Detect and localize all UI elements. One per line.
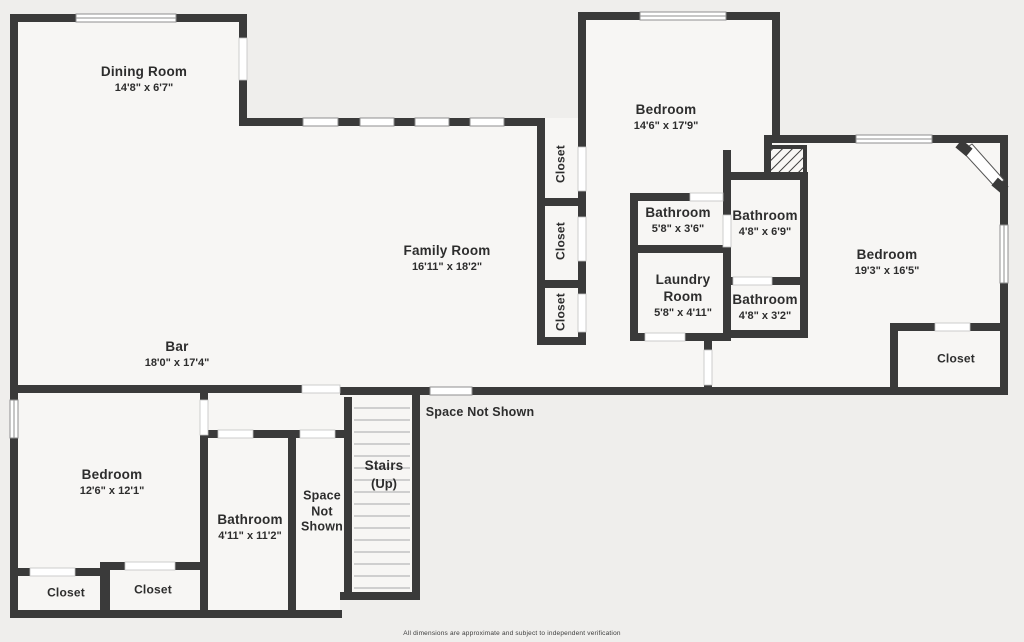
room-name: Bar [145, 339, 210, 356]
room-label-bathroom-3: Bathroom 4'8" x 3'2" [732, 292, 797, 324]
room-dims: 14'8" x 6'7" [101, 82, 187, 96]
room-label-bar: Bar 18'0" x 17'4" [145, 339, 210, 371]
room-label-bathroom-2: Bathroom 4'8" x 6'9" [732, 208, 797, 240]
room-label-bathroom-bottom: Bathroom 4'11" x 11'2" [217, 512, 282, 544]
label-space-not-shown-room: Space Not Shown [292, 489, 352, 536]
room-label-dining-room: Dining Room 14'8" x 6'7" [101, 64, 187, 96]
room-label-bedroom-top: Bedroom 14'6" x 17'9" [634, 102, 699, 134]
room-name: Space Not Shown [292, 489, 352, 536]
room-dims: 5'8" x 4'11" [637, 307, 729, 321]
room-label-closet-hall-1: Closet [554, 145, 569, 183]
room-name: Laundry Room [637, 272, 729, 306]
room-label-family-room: Family Room 16'11" x 18'2" [404, 243, 491, 275]
room-dims: (Up) [365, 476, 404, 492]
room-dims: 14'6" x 17'9" [634, 120, 699, 134]
room-name: Bedroom [634, 102, 699, 119]
room-label-bathroom-1: Bathroom 5'8" x 3'6" [645, 205, 710, 237]
room-label-closet-hall-2: Closet [554, 222, 569, 260]
room-label-closet-bottom-left-2: Closet [134, 583, 172, 598]
room-label-bedroom-bottom-left: Bedroom 12'6" x 12'1" [80, 467, 145, 499]
room-name: Closet [554, 145, 569, 183]
floor-plan-drawing [0, 0, 1024, 642]
room-name: Bathroom [645, 205, 710, 222]
room-dims: 4'8" x 6'9" [732, 226, 797, 240]
room-label-laundry-room: Laundry Room 5'8" x 4'11" [637, 272, 729, 321]
room-label-closet-bottom-right: Closet [937, 352, 975, 367]
room-name: Stairs [365, 458, 404, 475]
disclaimer-text: All dimensions are approximate and subje… [403, 630, 620, 637]
room-name: Bedroom [80, 467, 145, 484]
room-name: Dining Room [101, 64, 187, 81]
room-name: Closet [134, 583, 172, 598]
room-name: Closet [554, 293, 569, 331]
room-dims: 12'6" x 12'1" [80, 485, 145, 499]
room-label-bedroom-right: Bedroom 19'3" x 16'5" [855, 247, 920, 279]
room-dims: 4'11" x 11'2" [217, 530, 282, 544]
floor-plan: Dining Room 14'8" x 6'7" Family Room 16'… [0, 0, 1024, 642]
room-name: Family Room [404, 243, 491, 260]
label-space-not-shown-open: Space Not Shown [426, 405, 535, 421]
room-dims: 5'8" x 3'6" [645, 223, 710, 237]
floor-fill [10, 12, 1008, 618]
room-dims: 4'8" x 3'2" [732, 310, 797, 324]
room-name: Closet [47, 586, 85, 601]
room-name: Closet [554, 222, 569, 260]
room-name: Bathroom [732, 292, 797, 309]
room-label-closet-hall-3: Closet [554, 293, 569, 331]
room-dims: 19'3" x 16'5" [855, 265, 920, 279]
room-dims: 16'11" x 18'2" [404, 261, 491, 275]
room-name: Bedroom [855, 247, 920, 264]
room-dims: 18'0" x 17'4" [145, 357, 210, 371]
room-name: Closet [937, 352, 975, 367]
room-label-stairs: Stairs (Up) [365, 458, 404, 492]
room-label-closet-bottom-left-1: Closet [47, 586, 85, 601]
fireplace [769, 147, 805, 174]
room-name: Bathroom [217, 512, 282, 529]
room-name: Bathroom [732, 208, 797, 225]
room-name: Space Not Shown [426, 405, 535, 421]
